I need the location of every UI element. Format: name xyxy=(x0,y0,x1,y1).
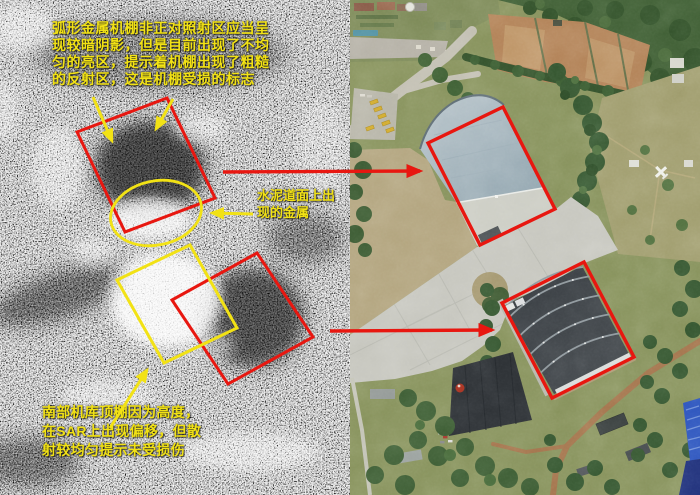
note-line: 南部机库顶棚因为高度， xyxy=(42,403,201,422)
note-line: 射较均匀提示未受损伤 xyxy=(42,441,201,460)
note-line: 弧形金属机棚非正对照射区应当呈 xyxy=(52,20,270,37)
metal-debris-note: 水泥道面上出 现的金属 xyxy=(257,187,335,221)
note-line: 现较暗阴影，但是目前出现了不均 xyxy=(52,37,270,54)
south-hangar-note: 南部机库顶棚因为高度， 在SAR上出现偏移，但散 射较均匀提示未受损伤 xyxy=(42,403,201,460)
sar-optical-comparison-figure: 弧形金属机棚非正对照射区应当呈 现较暗阴影，但是目前出现了不均 匀的亮区，提示着… xyxy=(0,0,700,495)
damaged-hangar-note: 弧形金属机棚非正对照射区应当呈 现较暗阴影，但是目前出现了不均 匀的亮区，提示着… xyxy=(52,20,270,88)
note-line: 水泥道面上出 xyxy=(257,187,335,204)
optical-image-panel xyxy=(350,0,700,495)
satellite-scene xyxy=(350,0,700,495)
note-line: 在SAR上出现偏移，但散 xyxy=(42,422,201,441)
note-line: 匀的亮区，提示着机棚出现了粗糙 xyxy=(52,54,270,71)
note-line: 的反射区，这是机棚受损的标志 xyxy=(52,71,270,88)
note-line: 现的金属 xyxy=(257,204,335,221)
